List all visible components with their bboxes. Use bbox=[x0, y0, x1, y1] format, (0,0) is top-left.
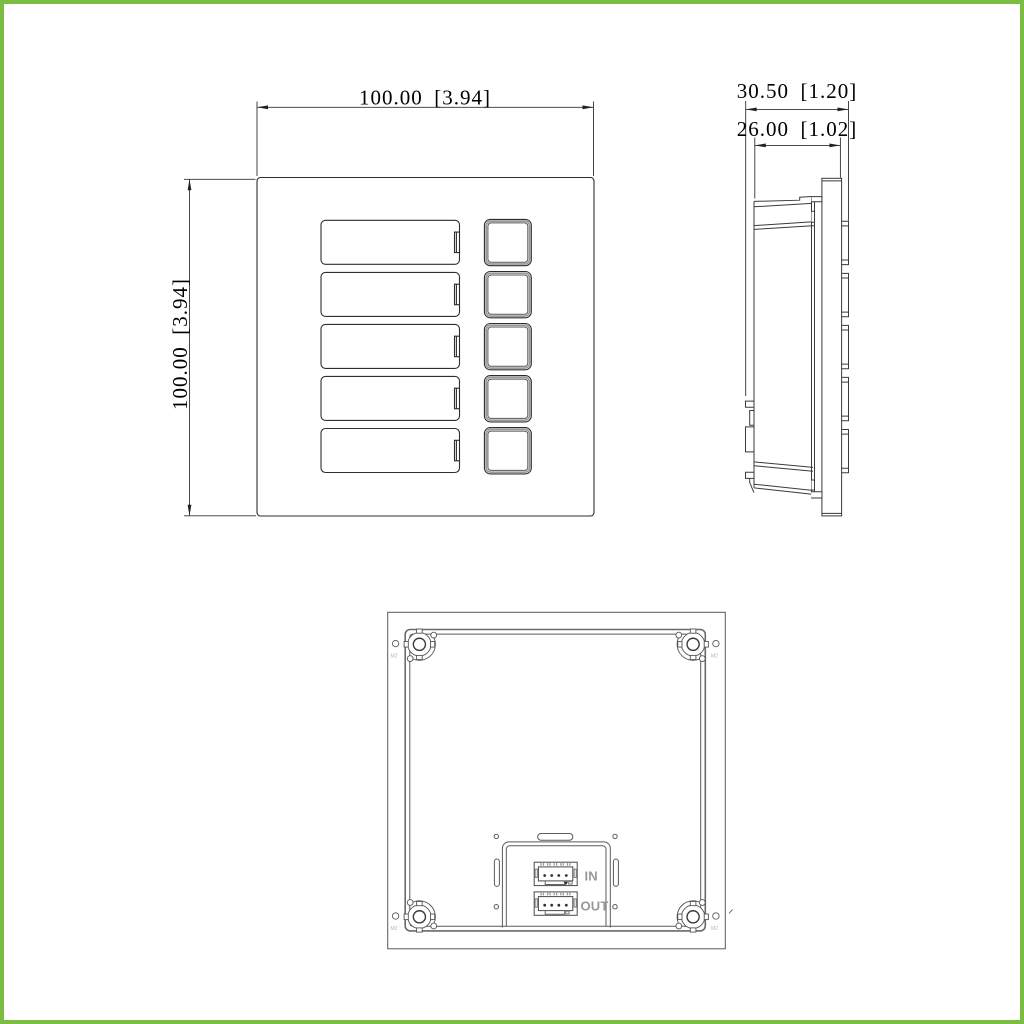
svg-text:26.00 [1.02]: 26.00 [1.02] bbox=[737, 117, 858, 141]
svg-text:M2: M2 bbox=[391, 926, 398, 932]
svg-text:M2: M2 bbox=[391, 654, 398, 660]
svg-text:M2: M2 bbox=[711, 654, 718, 660]
svg-text:100.00 [3.94]: 100.00 [3.94] bbox=[359, 86, 491, 110]
svg-text:IN: IN bbox=[585, 869, 598, 884]
svg-text:OUT: OUT bbox=[581, 899, 609, 914]
svg-text:30.50 [1.20]: 30.50 [1.20] bbox=[737, 79, 858, 103]
svg-text:100.00 [3.94]: 100.00 [3.94] bbox=[168, 278, 192, 410]
svg-text:M2: M2 bbox=[711, 926, 718, 932]
